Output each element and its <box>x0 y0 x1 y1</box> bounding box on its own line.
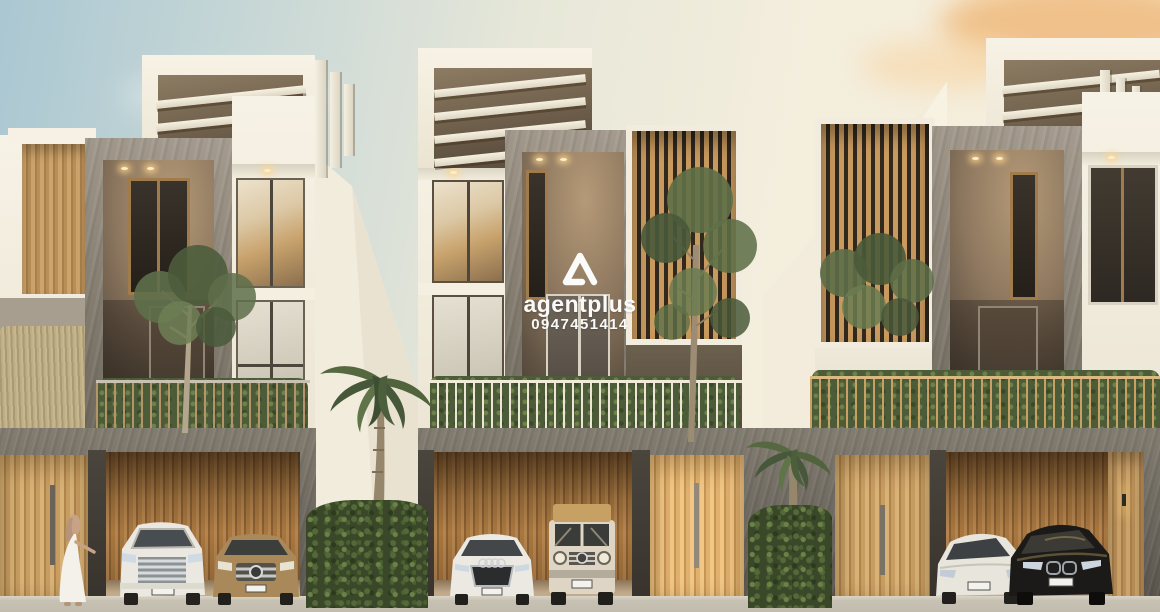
watermark: agentplus 0947451414 <box>470 250 690 333</box>
hedge-right <box>748 505 832 608</box>
left-roof-fin <box>330 72 340 168</box>
car-white-minivan <box>112 513 212 607</box>
door-handle <box>880 505 885 575</box>
right-wood-door <box>835 455 932 610</box>
hedge-left <box>306 500 428 608</box>
watermark-brand: agentplus <box>470 292 690 316</box>
mid-garage-pillar-right <box>632 450 650 612</box>
right-soffit <box>1082 152 1160 165</box>
door-handle <box>694 483 699 568</box>
mid-wood-door <box>650 455 744 610</box>
watermark-phone: 0947451414 <box>470 316 690 333</box>
left-side-beam <box>8 128 96 144</box>
bush-right-unit <box>812 225 942 350</box>
left-soffit <box>232 164 315 178</box>
wall-sconce <box>1122 494 1126 506</box>
townhouse-render: agentplus 0947451414 <box>0 0 1160 612</box>
right-dark-window <box>1088 165 1158 305</box>
car-cream-g-class <box>541 498 623 606</box>
car-white-sedan <box>447 524 537 606</box>
left-roof-fin <box>344 84 353 156</box>
left-roof-fin <box>315 60 326 178</box>
tree-left-unit <box>110 235 275 435</box>
left-slat-fence <box>22 144 88 294</box>
agentplus-logo-icon <box>558 250 602 288</box>
woman-in-white <box>50 508 100 608</box>
car-bronze-suv <box>208 527 304 607</box>
mid-soffit <box>418 166 508 180</box>
car-black-sedan <box>1005 510 1120 607</box>
right-window-slot <box>1010 172 1038 300</box>
